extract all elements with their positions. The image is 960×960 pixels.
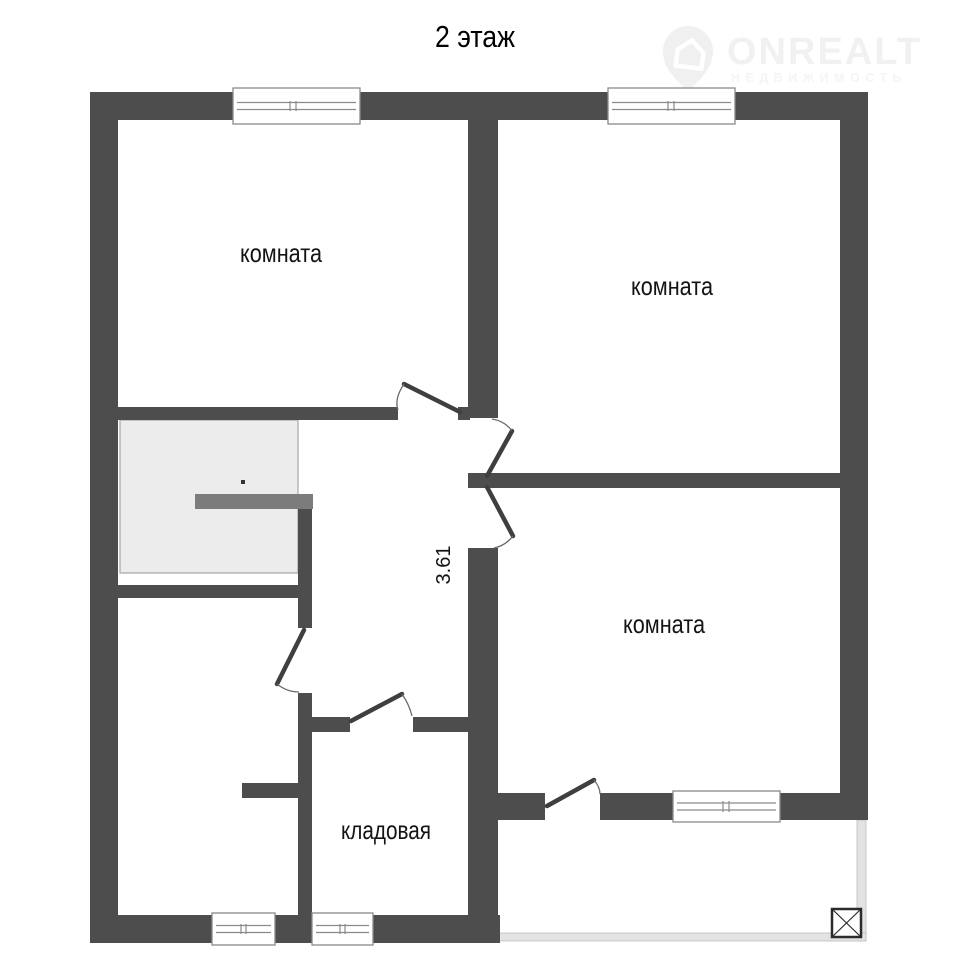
- watermark-tagline: НЕДВИЖИМОСТЬ: [731, 71, 907, 85]
- door-swing: [351, 694, 412, 721]
- stair-rail: [195, 494, 313, 509]
- wall-segment: [118, 585, 312, 598]
- room-label-middle-right: комната: [623, 609, 705, 639]
- room-label-storage: кладовая: [341, 815, 431, 845]
- wall-segment: [600, 793, 673, 820]
- door-swing: [277, 630, 304, 692]
- door-swing: [487, 419, 512, 476]
- terrace-edge-bottom: [497, 933, 866, 941]
- floor-plan-svg: ONREALT НЕДВИЖИМОСТЬ 2 этаж: [0, 0, 960, 960]
- window: [312, 913, 373, 945]
- wall-segment: [360, 92, 608, 120]
- wall-segment: [90, 92, 118, 943]
- door-swing: [547, 780, 600, 806]
- wall-segment: [413, 717, 468, 732]
- wall-segment: [298, 495, 312, 628]
- wall-segment: [275, 915, 312, 943]
- wall-segment: [468, 473, 498, 488]
- door-swing: [397, 384, 460, 412]
- wall-segment: [840, 92, 868, 820]
- wall-segment: [498, 473, 840, 488]
- terrace: [497, 820, 866, 941]
- wall-segment: [468, 120, 498, 418]
- dimension-label: 3.61: [433, 546, 455, 585]
- wall-segment: [90, 915, 212, 943]
- stair-dot-mark: [241, 480, 245, 484]
- floor-plan-page: ONREALT НЕДВИЖИМОСТЬ 2 этаж: [0, 0, 960, 960]
- wall-segment: [497, 793, 545, 820]
- window: [212, 913, 275, 945]
- window: [673, 791, 780, 822]
- doors: [277, 384, 600, 806]
- window: [233, 88, 360, 124]
- room-label-top-left: комната: [240, 238, 322, 268]
- wall-segment: [780, 793, 868, 820]
- door-swing: [487, 487, 513, 548]
- crossed-shaft-box: [832, 909, 861, 937]
- wall-segment: [468, 548, 498, 943]
- window: [608, 88, 735, 124]
- wall-segment: [242, 783, 298, 798]
- wall-segment: [298, 717, 350, 732]
- page-title: 2 этаж: [435, 19, 515, 54]
- watermark-brand: ONREALT: [727, 31, 922, 73]
- wall-segment: [118, 407, 398, 420]
- map-pin-house-icon: [663, 26, 713, 92]
- watermark-logo: ONREALT НЕДВИЖИМОСТЬ: [663, 26, 922, 92]
- room-label-top-right: комната: [631, 271, 713, 301]
